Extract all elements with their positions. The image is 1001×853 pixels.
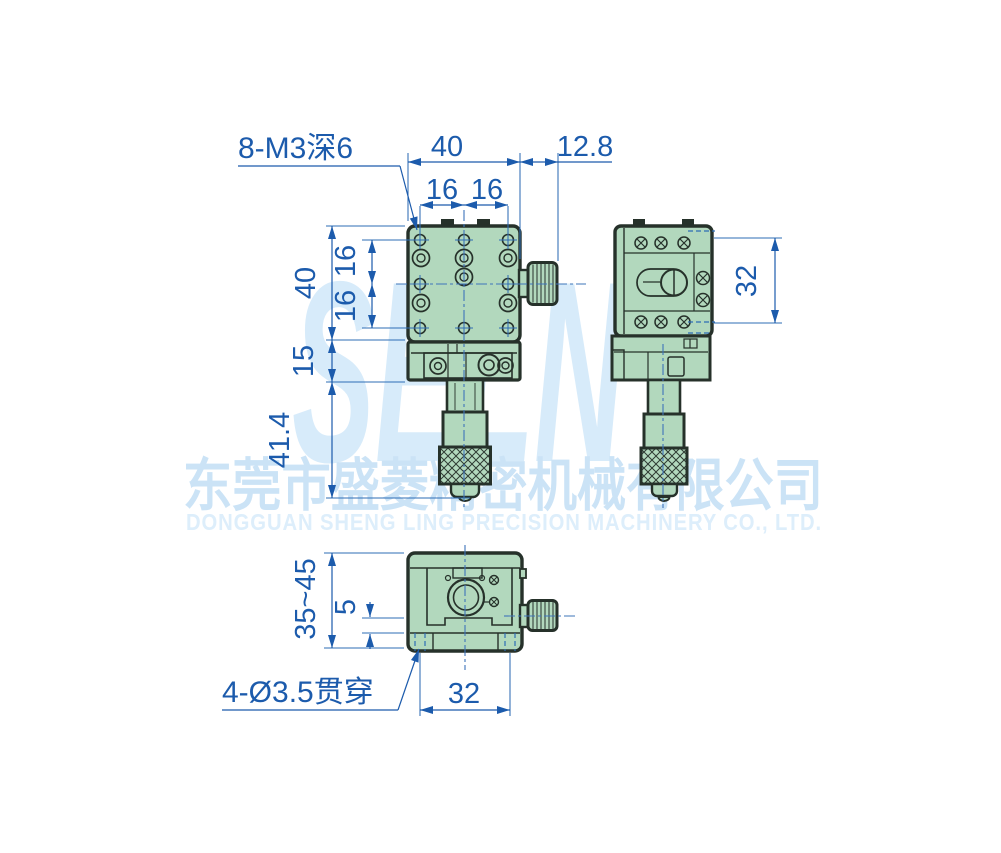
side-micrometer: [641, 380, 687, 501]
dim-front-base-height: 15: [288, 345, 320, 377]
stage-technical-drawing: SELN 东莞市盛菱精密机械有限公司 DONGGUAN SHENG LING P…: [0, 0, 1001, 853]
dim-bottom-plate-thickness: 5: [330, 599, 362, 615]
dim-bottom-hole-span: 32: [448, 678, 480, 710]
bottom-clamp-knob: [520, 569, 557, 631]
side-base: [612, 336, 710, 380]
dim-bottom-height-range: 35~45: [290, 558, 322, 639]
dim-side-screw-span: 32: [731, 265, 763, 297]
side-micrometer-knurl: [641, 448, 687, 484]
front-micrometer-knurl: [440, 447, 491, 484]
watermark-company-en: DONGGUAN SHENG LING PRECISION MACHINERY …: [186, 509, 822, 535]
front-micrometer: [440, 380, 491, 501]
callout-leader-through: [398, 649, 419, 710]
dim-front-left-height: 40: [290, 267, 322, 299]
dim-front-top-pitch-a: 16: [426, 174, 458, 206]
dim-front-knob-offset: 12.8: [557, 131, 613, 163]
callout-through-holes: 4-Ø3.5贯穿: [222, 676, 374, 709]
dim-front-micrometer-length: 41.4: [264, 412, 296, 468]
dim-front-left-pitch-a: 16: [330, 245, 362, 277]
dim-front-left-pitch-b: 16: [330, 290, 362, 322]
dim-front-top-pitch-b: 16: [471, 174, 503, 206]
drawing-canvas: SELN 东莞市盛菱精密机械有限公司 DONGGUAN SHENG LING P…: [0, 0, 1001, 853]
dim-front-top-width: 40: [431, 131, 463, 163]
callout-tapped-holes: 8-M3深6: [238, 132, 353, 165]
bottom-view: [408, 553, 557, 651]
